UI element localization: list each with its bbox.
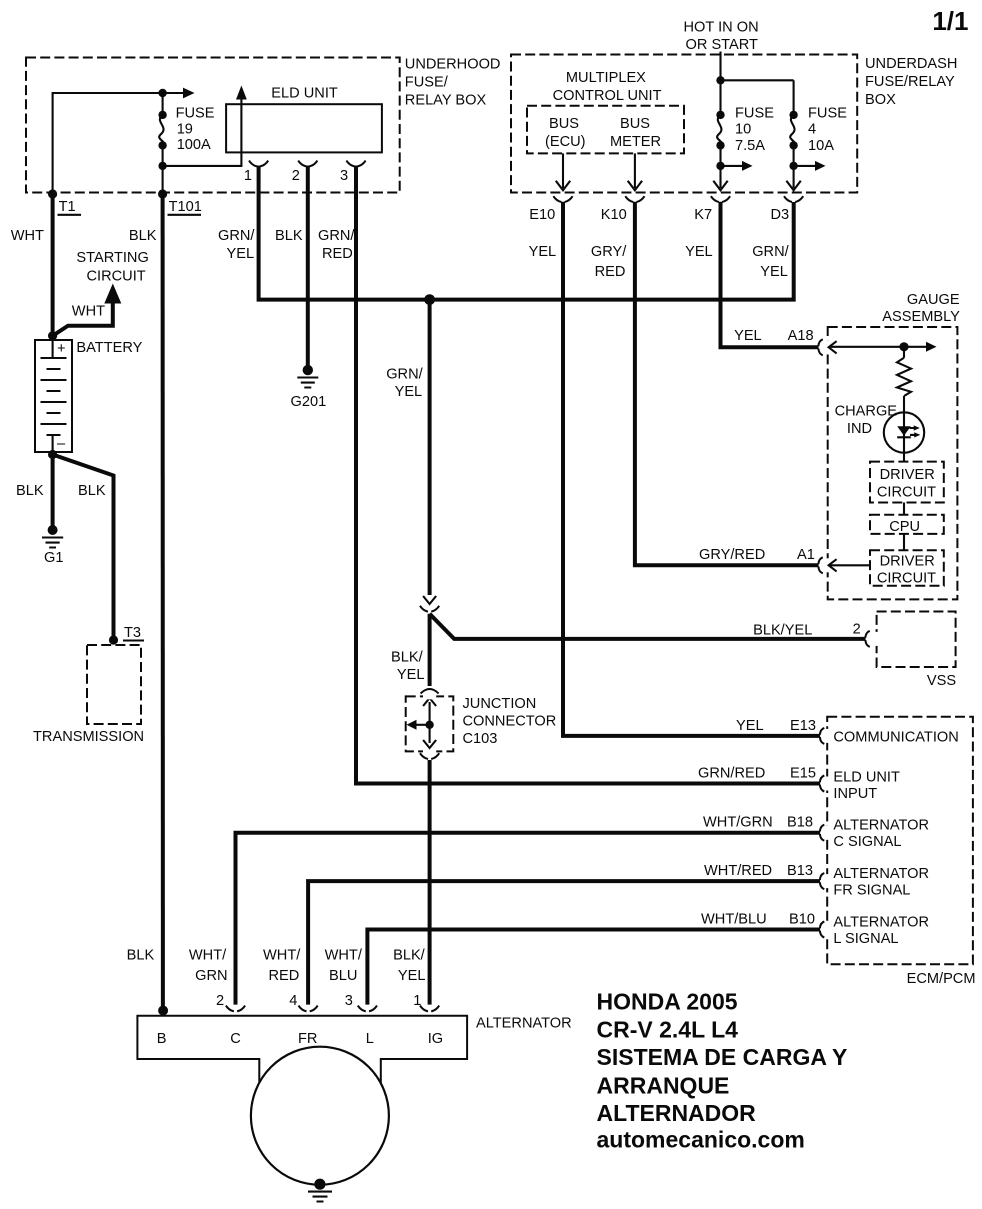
svg-text:YEL: YEL [529,244,557,260]
svg-text:GRN/RED: GRN/RED [698,766,765,782]
svg-text:BLK/YEL: BLK/YEL [753,623,812,639]
svg-text:C SIGNAL: C SIGNAL [833,834,901,850]
svg-text:GRN/: GRN/ [386,367,423,383]
svg-text:GRN: GRN [195,968,227,984]
svg-text:3: 3 [340,168,348,184]
svg-text:B: B [157,1031,167,1047]
svg-text:E10: E10 [529,207,555,223]
svg-text:CIRCUIT: CIRCUIT [877,571,936,587]
svg-text:UNDERDASH: UNDERDASH [865,56,957,72]
svg-text:WHT/: WHT/ [263,948,301,964]
svg-text:A1: A1 [797,547,815,563]
svg-text:BUS: BUS [549,116,579,132]
svg-text:BLK/: BLK/ [391,650,424,666]
svg-text:B10: B10 [789,912,815,928]
svg-text:4: 4 [289,993,297,1009]
svg-text:WHT/: WHT/ [325,948,363,964]
svg-text:WHT/GRN: WHT/GRN [703,815,773,831]
svg-text:7.5A: 7.5A [735,138,765,154]
svg-text:G1: G1 [44,550,63,566]
svg-text:DRIVER: DRIVER [880,554,935,570]
svg-text:C: C [230,1031,241,1047]
svg-text:IND: IND [847,421,872,437]
svg-text:ALTERNATOR: ALTERNATOR [833,818,929,834]
svg-text:L SIGNAL: L SIGNAL [833,931,898,947]
svg-text:1: 1 [244,168,252,184]
svg-text:10A: 10A [808,138,834,154]
svg-text:+: + [57,341,66,357]
svg-text:FUSE: FUSE [808,106,847,122]
svg-text:YEL: YEL [736,718,764,734]
svg-text:2: 2 [853,622,861,638]
svg-text:B13: B13 [787,863,813,879]
svg-text:RED: RED [595,264,626,280]
svg-text:JUNCTION: JUNCTION [463,696,537,712]
svg-text:WHT: WHT [11,228,44,244]
svg-text:TRANSMISSION: TRANSMISSION [33,729,144,745]
svg-text:K7: K7 [694,207,712,223]
svg-text:FUSE/: FUSE/ [405,75,449,91]
svg-text:(ECU): (ECU) [545,134,586,150]
svg-text:MULTIPLEX: MULTIPLEX [566,70,646,86]
svg-text:RED: RED [322,246,353,262]
svg-text:BLU: BLU [329,968,357,984]
svg-text:BLK: BLK [16,483,44,499]
svg-text:DRIVER: DRIVER [880,467,935,483]
svg-text:C103: C103 [463,731,498,747]
svg-text:FR SIGNAL: FR SIGNAL [833,883,910,899]
svg-text:ASSEMBLY: ASSEMBLY [882,309,960,325]
svg-text:BOX: BOX [865,92,896,108]
svg-text:GAUGE: GAUGE [907,292,960,308]
svg-text:FUSE: FUSE [176,106,215,122]
svg-text:OR START: OR START [686,37,759,53]
svg-text:ALTERNATOR: ALTERNATOR [833,915,929,931]
svg-text:10: 10 [735,122,751,138]
svg-text:SISTEMA DE CARGA Y: SISTEMA DE CARGA Y [597,1044,848,1070]
svg-text:GRY/: GRY/ [591,244,627,260]
svg-text:STARTING: STARTING [76,250,148,266]
svg-text:FUSE/RELAY: FUSE/RELAY [865,74,955,90]
svg-text:ELD UNIT: ELD UNIT [833,770,900,786]
svg-text:3: 3 [345,993,353,1009]
svg-text:UNDERHOOD: UNDERHOOD [405,57,501,73]
svg-text:CONTROL UNIT: CONTROL UNIT [553,88,662,104]
svg-text:A18: A18 [788,328,814,344]
svg-text:ALTERNATOR: ALTERNATOR [833,866,929,882]
svg-text:GRY/RED: GRY/RED [699,547,765,563]
svg-text:RELAY BOX: RELAY BOX [405,93,487,109]
svg-text:YEL: YEL [397,667,425,683]
svg-text:E13: E13 [790,718,816,734]
svg-text:YEL: YEL [227,246,255,262]
svg-text:BLK: BLK [129,228,157,244]
svg-text:automecanico.com: automecanico.com [597,1127,805,1153]
svg-text:COMMUNICATION: COMMUNICATION [833,730,958,746]
svg-text:GRN/: GRN/ [752,244,789,260]
svg-text:YEL: YEL [395,384,423,400]
svg-text:WHT/BLU: WHT/BLU [701,912,767,928]
svg-text:CONNECTOR: CONNECTOR [463,714,557,730]
svg-text:T101: T101 [169,199,202,215]
svg-text:2: 2 [216,993,224,1009]
svg-text:GRN/: GRN/ [318,228,355,244]
svg-text:VSS: VSS [927,673,956,689]
svg-text:CR-V 2.4L L4: CR-V 2.4L L4 [597,1016,739,1042]
svg-text:WHT/RED: WHT/RED [704,863,772,879]
svg-text:L: L [366,1031,374,1047]
svg-text:BLK/: BLK/ [393,948,426,964]
svg-text:IG: IG [428,1031,443,1047]
svg-text:T3: T3 [124,625,141,641]
svg-text:E15: E15 [790,766,816,782]
svg-text:BLK: BLK [127,948,155,964]
svg-text:2: 2 [292,168,300,184]
svg-text:ARRANQUE: ARRANQUE [597,1072,730,1098]
svg-text:ECM/PCM: ECM/PCM [907,971,976,987]
svg-text:D3: D3 [771,207,790,223]
svg-text:YEL: YEL [734,328,762,344]
svg-text:CPU: CPU [889,519,920,535]
svg-text:19: 19 [177,122,193,138]
svg-text:BLK: BLK [275,228,303,244]
svg-text:FR: FR [298,1031,317,1047]
svg-text:G201: G201 [291,394,327,410]
svg-text:INPUT: INPUT [833,786,877,802]
svg-text:BATTERY: BATTERY [76,340,142,356]
svg-text:HONDA 2005: HONDA 2005 [597,988,738,1014]
svg-text:ALTERNATOR: ALTERNATOR [476,1016,572,1032]
svg-text:T1: T1 [59,199,76,215]
svg-text:4: 4 [808,122,816,138]
svg-text:RED: RED [269,968,300,984]
svg-text:YEL: YEL [685,244,713,260]
svg-text:100A: 100A [177,137,211,153]
svg-text:CIRCUIT: CIRCUIT [877,485,936,501]
svg-text:WHT/: WHT/ [189,948,227,964]
svg-text:CHARGE: CHARGE [835,404,898,420]
svg-text:BUS: BUS [620,116,650,132]
svg-text:ELD UNIT: ELD UNIT [271,85,338,101]
svg-text:CIRCUIT: CIRCUIT [87,269,146,285]
svg-text:YEL: YEL [398,968,426,984]
svg-text:FUSE: FUSE [735,106,774,122]
svg-text:K10: K10 [601,207,627,223]
svg-text:YEL: YEL [760,264,788,280]
svg-text:–: – [57,436,66,452]
svg-text:WHT: WHT [72,304,105,320]
svg-text:B18: B18 [787,815,813,831]
svg-text:BLK: BLK [78,483,106,499]
svg-text:GRN/: GRN/ [218,228,255,244]
svg-text:METER: METER [610,134,661,150]
svg-text:1/1: 1/1 [932,6,968,36]
svg-text:HOT IN ON: HOT IN ON [684,20,759,36]
svg-text:ALTERNADOR: ALTERNADOR [597,1100,757,1126]
